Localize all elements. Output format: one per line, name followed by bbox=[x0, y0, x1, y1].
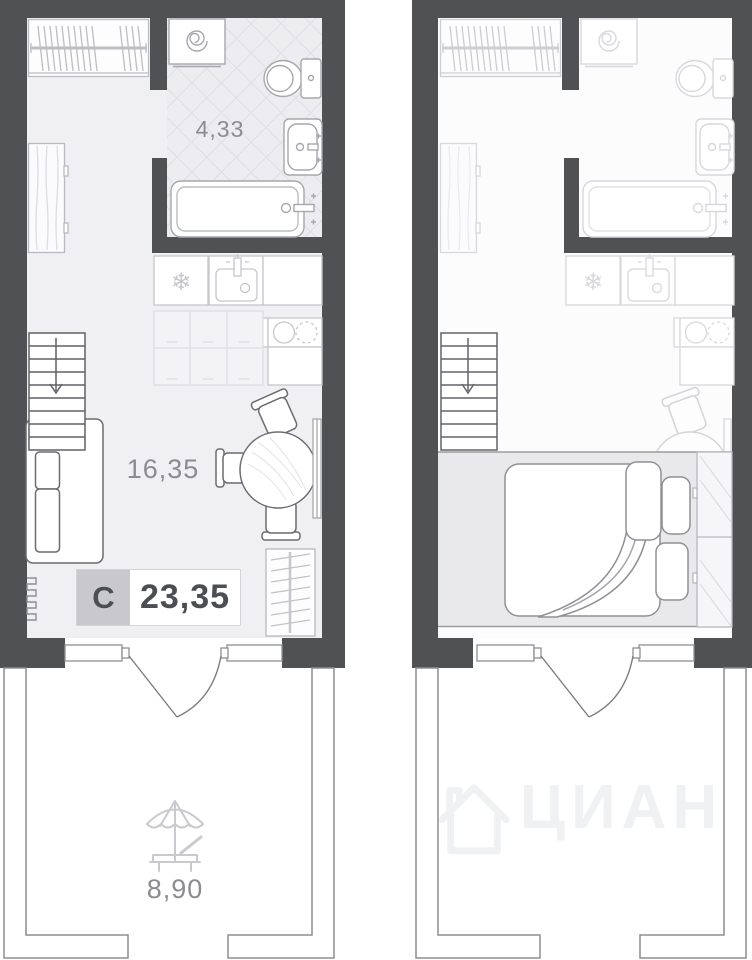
tall-cabinet-symbol bbox=[441, 144, 481, 253]
stairs-symbol bbox=[29, 333, 85, 450]
terrace-walls-left bbox=[4, 668, 334, 958]
dining-table-symbol bbox=[216, 388, 316, 540]
heater-zigzag-symbol bbox=[27, 578, 36, 620]
total-area-value: 23,35 bbox=[130, 570, 240, 625]
bathroom-area-label: 4,33 bbox=[180, 114, 260, 144]
kitchen-fixtures bbox=[566, 254, 734, 385]
kitchen-cabinets-grid bbox=[154, 311, 263, 385]
wardrobe-symbol bbox=[693, 452, 732, 627]
apartment-type-letter: С bbox=[77, 570, 130, 625]
wardrobe-symbol bbox=[266, 549, 315, 636]
radiator-symbol bbox=[313, 419, 321, 518]
terrace-area-label: 8,90 bbox=[125, 872, 225, 906]
terrace-walls-right bbox=[416, 668, 746, 958]
terrace-umbrella-icon bbox=[147, 801, 203, 871]
radiator-symbol bbox=[724, 419, 731, 453]
total-area-badge: С 23,35 bbox=[77, 570, 240, 625]
tall-cabinet-symbol bbox=[29, 144, 69, 253]
closet-hangers-symbol bbox=[28, 20, 149, 77]
bathroom-fixtures bbox=[581, 19, 734, 237]
window-symbols-left bbox=[65, 645, 282, 661]
chair-symbol bbox=[661, 387, 711, 439]
closet-hangers-symbol bbox=[440, 20, 561, 77]
floor-plan-page: ЦИАН bbox=[0, 0, 752, 960]
window-symbols-right bbox=[477, 645, 694, 661]
stairs-symbol bbox=[441, 333, 497, 450]
living-area-label: 16,35 bbox=[113, 452, 213, 486]
balcony-door-swing-right bbox=[541, 656, 633, 717]
balcony-door-swing-left bbox=[129, 656, 221, 717]
